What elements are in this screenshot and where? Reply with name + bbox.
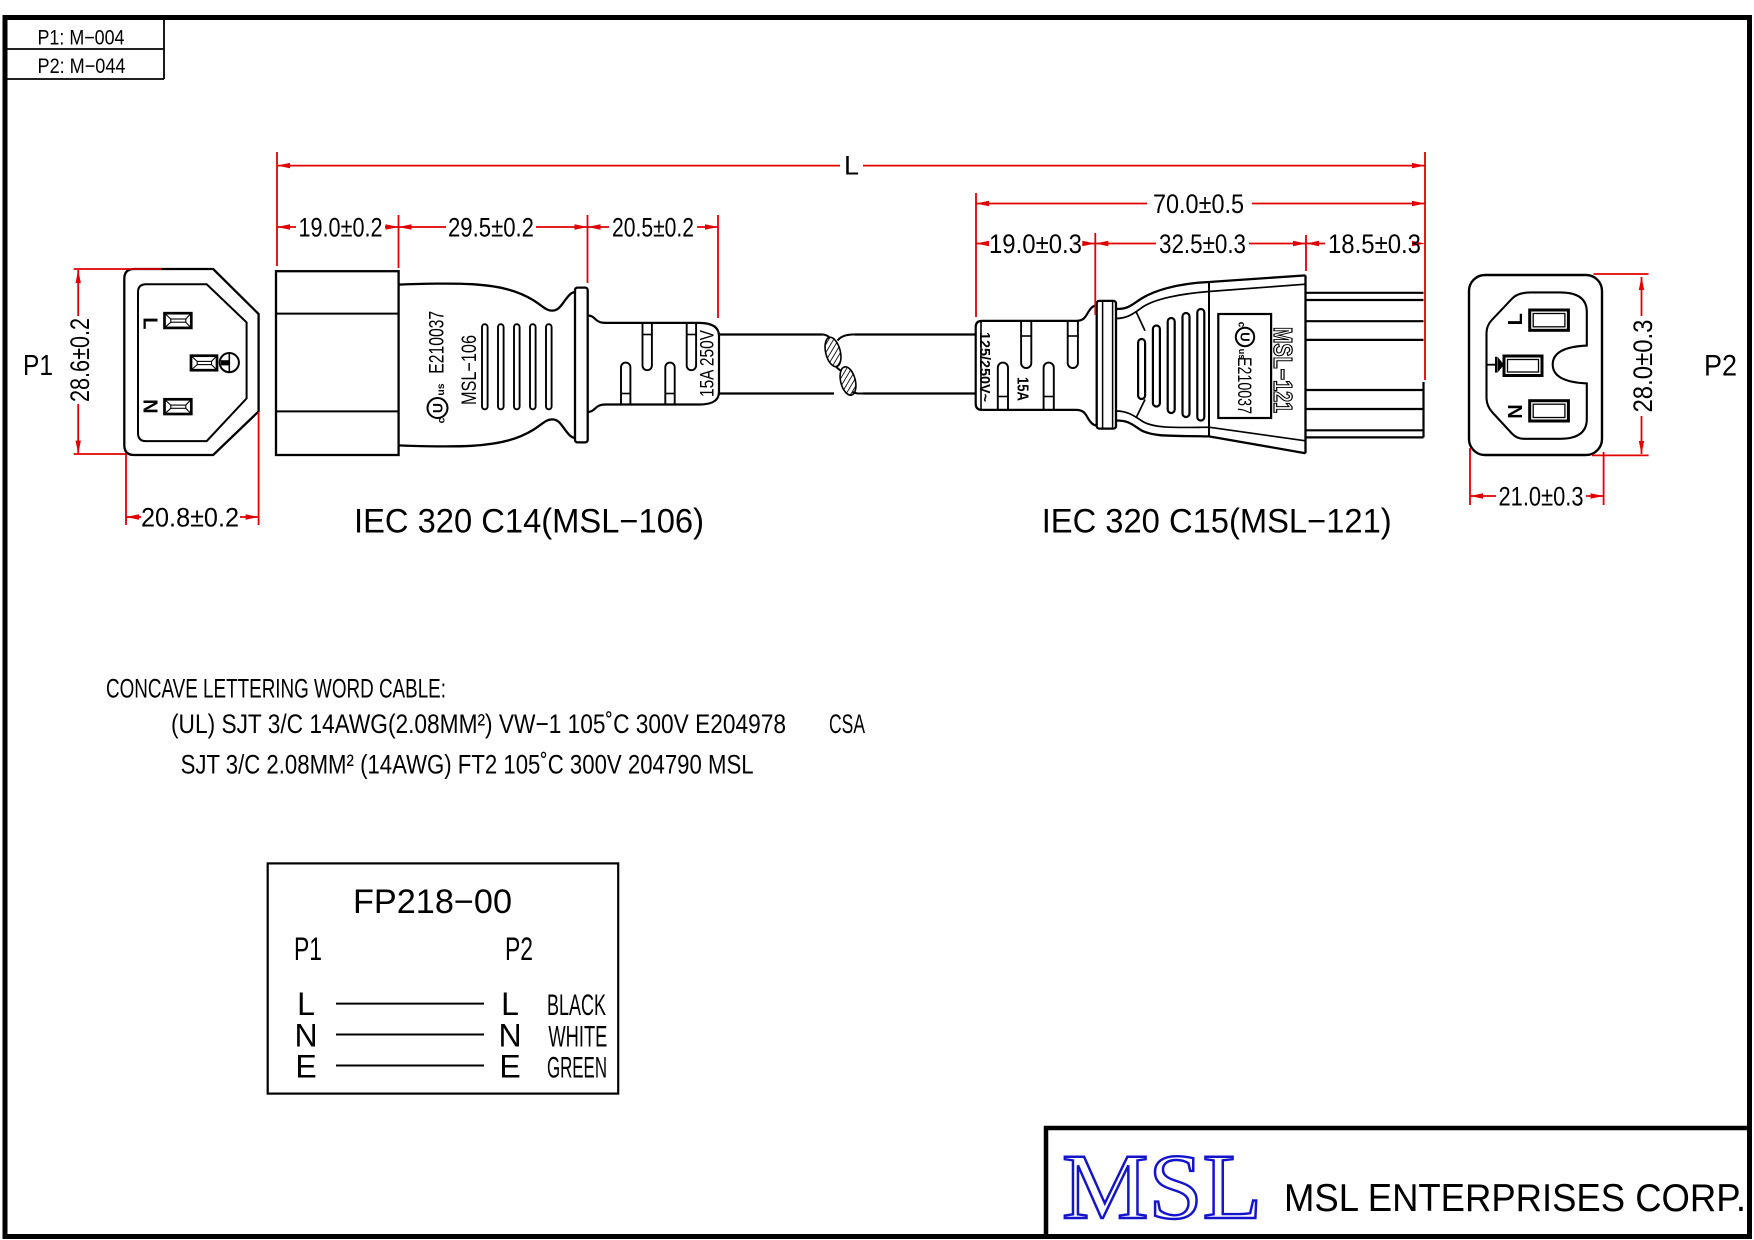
svg-text:MSL ENTERPRISES CORP.: MSL ENTERPRISES CORP. bbox=[1284, 1177, 1746, 1220]
svg-text:MSL−106: MSL−106 bbox=[458, 335, 481, 405]
svg-text:c: c bbox=[436, 417, 448, 423]
svg-text:21.0±0.3: 21.0±0.3 bbox=[1499, 482, 1584, 512]
svg-text:E: E bbox=[499, 1049, 520, 1085]
svg-text:28.6±0.2: 28.6±0.2 bbox=[65, 318, 95, 402]
svg-text:GREEN: GREEN bbox=[547, 1052, 607, 1085]
svg-text:E210037: E210037 bbox=[1233, 357, 1254, 414]
svg-text:WHITE: WHITE bbox=[548, 1021, 607, 1054]
svg-text:IEC 320 C15(MSL−121): IEC 320 C15(MSL−121) bbox=[1042, 503, 1392, 541]
svg-text:70.0±0.5: 70.0±0.5 bbox=[1153, 189, 1244, 219]
svg-text:P1: P1 bbox=[23, 350, 53, 382]
svg-text:L: L bbox=[139, 317, 161, 329]
svg-text:P2: P2 bbox=[1704, 350, 1737, 383]
svg-text:32.5±0.3: 32.5±0.3 bbox=[1159, 229, 1246, 259]
svg-text:N: N bbox=[1505, 404, 1527, 418]
svg-text:20.8±0.2: 20.8±0.2 bbox=[141, 503, 239, 533]
svg-text:29.5±0.2: 29.5±0.2 bbox=[448, 213, 534, 243]
svg-text:15A: 15A bbox=[1014, 377, 1031, 401]
svg-text:us: us bbox=[435, 383, 447, 395]
svg-text:U: U bbox=[429, 403, 445, 413]
svg-text:MSL: MSL bbox=[1062, 1136, 1262, 1239]
svg-text:20.5±0.2: 20.5±0.2 bbox=[612, 213, 694, 243]
svg-text:18.5±0.3: 18.5±0.3 bbox=[1328, 229, 1421, 259]
svg-text:MSL−121: MSL−121 bbox=[1268, 327, 1298, 413]
svg-text:19.0±0.2: 19.0±0.2 bbox=[299, 213, 383, 243]
svg-text:(UL) SJT 3/C 14AWG(2.08MM²) VW: (UL) SJT 3/C 14AWG(2.08MM²) VW−1 105˚C 3… bbox=[171, 709, 786, 739]
svg-text:15A 250V: 15A 250V bbox=[698, 330, 719, 397]
svg-text:CONCAVE LETTERING WORD CABLE:: CONCAVE LETTERING WORD CABLE: bbox=[106, 674, 446, 704]
svg-text:c: c bbox=[1236, 322, 1247, 328]
svg-text:FP218−00: FP218−00 bbox=[353, 883, 512, 921]
svg-text:N: N bbox=[139, 399, 161, 413]
svg-text:SJT 3/C 2.08MM² (14AWG) FT2 10: SJT 3/C 2.08MM² (14AWG) FT2 105˚C 300V 2… bbox=[181, 750, 754, 780]
svg-text:BLACK: BLACK bbox=[547, 989, 606, 1022]
svg-text:P1: M−004: P1: M−004 bbox=[38, 27, 125, 50]
svg-text:U: U bbox=[1238, 332, 1253, 341]
svg-text:125/250V~: 125/250V~ bbox=[976, 332, 993, 402]
svg-text:19.0±0.3: 19.0±0.3 bbox=[989, 229, 1082, 259]
svg-text:E: E bbox=[295, 1049, 316, 1085]
svg-text:P2: P2 bbox=[505, 931, 533, 967]
svg-text:CSA: CSA bbox=[829, 709, 865, 739]
svg-text:L: L bbox=[1505, 313, 1527, 325]
svg-text:P1: P1 bbox=[294, 931, 322, 967]
svg-text:L: L bbox=[844, 151, 859, 181]
svg-text:E210037: E210037 bbox=[426, 311, 449, 374]
svg-text:IEC 320 C14(MSL−106): IEC 320 C14(MSL−106) bbox=[354, 503, 704, 541]
svg-text:P2: M−044: P2: M−044 bbox=[38, 55, 126, 78]
svg-text:28.0±0.3: 28.0±0.3 bbox=[1628, 320, 1658, 413]
